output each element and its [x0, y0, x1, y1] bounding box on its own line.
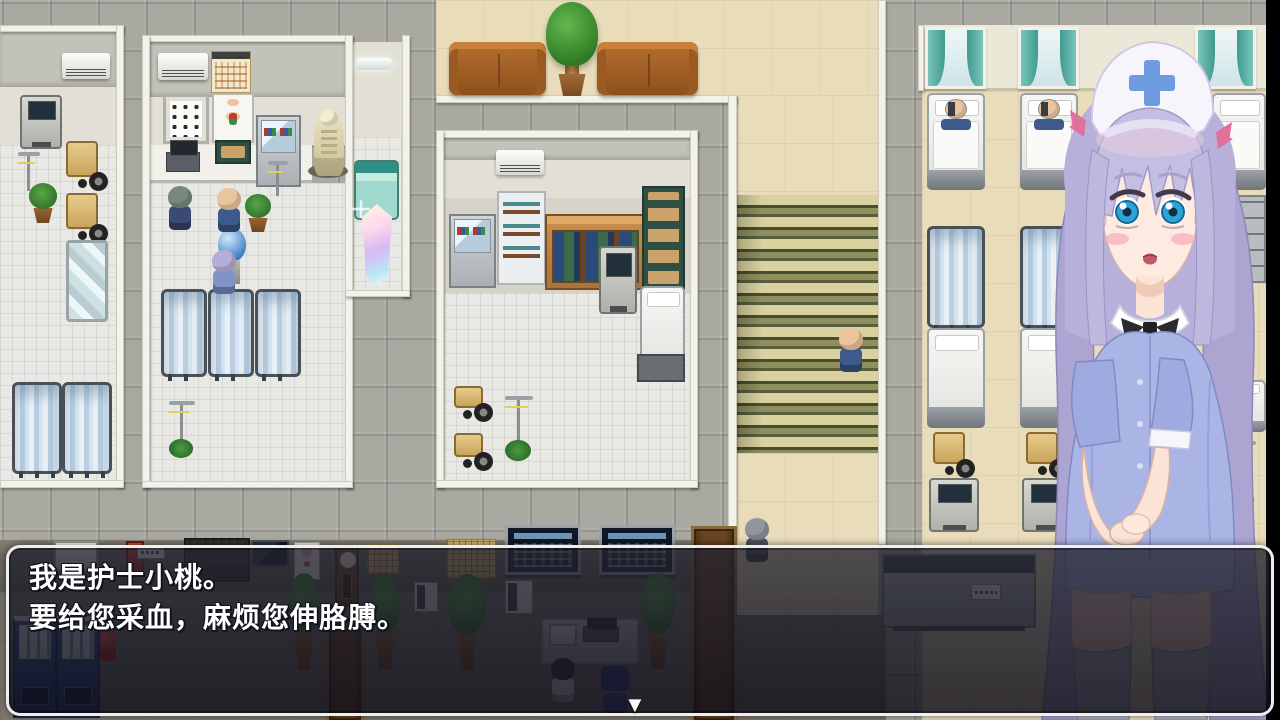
dialogue-window[interactable]: 我是护士小桃。 要给您采血，麻烦您伸胳膊。	[6, 545, 1274, 716]
wall-segment	[345, 290, 410, 297]
dark-desk	[637, 354, 685, 382]
medicine-shelf	[215, 140, 251, 164]
supply-rack	[642, 186, 685, 290]
air-conditioner	[158, 53, 208, 80]
ceiling-light	[356, 58, 392, 70]
eye-chart	[163, 94, 209, 144]
wall-segment	[0, 25, 124, 32]
privacy-screen	[62, 382, 112, 474]
wheelchair	[452, 384, 495, 422]
wall-segment	[436, 130, 698, 138]
wall-segment	[0, 480, 124, 488]
medicine-cabinet	[449, 214, 496, 288]
anatomy-poster	[212, 93, 254, 143]
privacy-screen	[927, 226, 985, 328]
wall-calendar	[211, 51, 251, 93]
hospital-bed	[927, 328, 985, 428]
wheelchair	[64, 139, 110, 191]
npc-patient-on-stairs	[836, 328, 866, 374]
wall-segment	[142, 481, 353, 488]
sofa	[449, 42, 546, 95]
bed-with-patient	[927, 93, 985, 190]
sparkle-icon	[352, 200, 370, 218]
wall-segment	[878, 0, 886, 545]
alcove-wall	[353, 42, 402, 137]
privacy-screen	[161, 289, 207, 377]
iv-stand	[502, 391, 534, 461]
npc-seated-nurse	[209, 250, 239, 296]
plant-base	[505, 440, 531, 461]
room-storage-wall-upper	[444, 138, 690, 160]
wall-segment	[402, 35, 410, 297]
wheelchair	[931, 430, 977, 478]
floor-corridor-top	[737, 95, 878, 195]
patient-shoulders	[941, 119, 971, 130]
wall-segment	[728, 95, 737, 540]
wall-segment	[436, 480, 698, 488]
laptop-computer	[166, 152, 200, 172]
plant-base	[169, 439, 193, 458]
wheelchair	[64, 191, 110, 243]
potted-tree	[544, 2, 600, 96]
dialogue-line-2: 要给您采血，麻烦您伸胳膊。	[29, 596, 406, 636]
patient-head	[945, 99, 967, 119]
dialogue-line-1: 我是护士小桃。	[29, 556, 232, 596]
privacy-screen	[12, 382, 62, 474]
skeleton-model	[314, 108, 344, 176]
npc-bald-patient	[214, 188, 244, 234]
air-conditioner	[496, 150, 544, 175]
medical-device	[599, 246, 637, 314]
medical-monitor-machine	[20, 95, 62, 149]
wall-segment	[690, 130, 698, 488]
wall-segment	[345, 35, 353, 488]
npc-doctor	[165, 186, 195, 232]
iv-stand	[266, 156, 288, 196]
staircase-shadow	[737, 195, 763, 453]
wall-segment	[436, 130, 444, 488]
wall-segment	[436, 95, 737, 103]
wheelchair	[452, 431, 495, 471]
wall-segment	[142, 35, 150, 488]
game-screen: 我是护士小桃。 要给您采血，麻烦您伸胳膊。 ▼	[0, 0, 1280, 720]
standing-mirror	[66, 240, 108, 322]
potted-plant	[242, 194, 274, 232]
privacy-screen	[255, 289, 301, 377]
wall-segment	[918, 25, 924, 91]
continue-arrow[interactable]: ▼	[624, 697, 646, 713]
privacy-screen	[208, 289, 254, 377]
wall-segment	[116, 25, 124, 487]
wall-segment	[142, 35, 353, 42]
dish-shelf	[497, 191, 546, 285]
medical-device	[929, 478, 979, 532]
sofa	[597, 42, 698, 95]
window-with-curtains	[925, 27, 986, 89]
air-conditioner	[62, 53, 110, 79]
plant-pot	[556, 74, 588, 96]
potted-plant	[26, 183, 60, 223]
iv-stand	[166, 396, 196, 458]
